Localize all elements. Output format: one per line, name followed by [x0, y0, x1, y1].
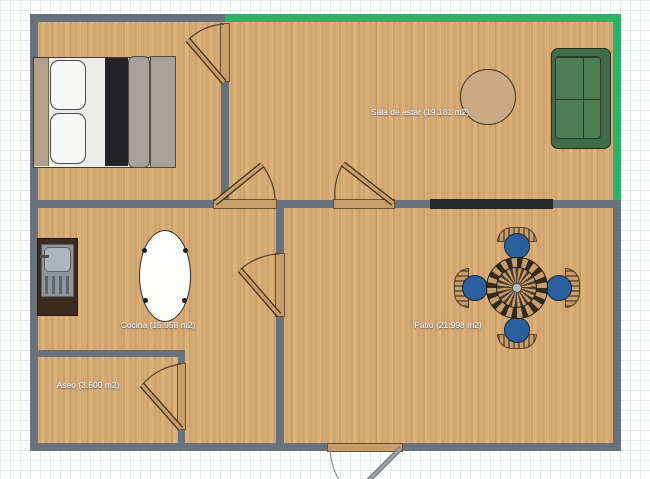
sink-appliance	[41, 244, 74, 297]
sink-faucet	[40, 255, 49, 258]
door-sill-aseo[interactable]	[177, 363, 186, 430]
door-sill-cocina-patio[interactable]	[275, 253, 285, 317]
patio-chair-icon[interactable]	[504, 233, 530, 259]
sofa-icon[interactable]	[551, 48, 611, 149]
bed-pillow	[50, 113, 86, 164]
room-label-cocina: Cocina (15.958 m2)	[88, 320, 228, 330]
oval-table-handle	[182, 298, 187, 303]
sofa-cushions	[555, 56, 601, 139]
room-label-sala: Sala de estar (19.181 m2)	[340, 107, 500, 117]
kitchen-sink-icon[interactable]	[37, 238, 78, 316]
patio-table-hub	[512, 283, 522, 293]
sink-vent-slats	[45, 276, 72, 294]
oval-table-handle	[143, 298, 148, 303]
door-exterior[interactable]	[330, 448, 401, 479]
patio-chair-icon[interactable]	[462, 275, 488, 301]
wall-top-gray[interactable]	[30, 14, 225, 22]
wall-cocina-patio-upper[interactable]	[276, 208, 284, 253]
double-bed-icon[interactable]	[33, 57, 176, 168]
door-sill-patio-sala[interactable]	[333, 199, 395, 209]
door-sill-bedroom[interactable]	[220, 23, 230, 82]
sink-basin	[44, 247, 71, 272]
wall-right-green[interactable]	[613, 14, 621, 203]
wall-bottom[interactable]	[30, 443, 621, 451]
door-sill-exterior[interactable]	[327, 443, 403, 452]
room-label-patio: Patio (21.998 m2)	[378, 320, 518, 330]
oval-table-icon[interactable]	[139, 230, 191, 322]
wall-middle-seg1[interactable]	[30, 200, 213, 208]
bed-blanket	[128, 56, 150, 168]
wall-aseo-right-upper[interactable]	[178, 355, 185, 363]
bed-pillow	[50, 60, 86, 110]
patio-chair-icon[interactable]	[546, 275, 572, 301]
oval-table-handle	[183, 248, 188, 253]
wall-right-gray[interactable]	[613, 203, 621, 451]
wall-middle-seg2[interactable]	[277, 200, 333, 208]
wall-top-green[interactable]	[225, 14, 621, 22]
wall-aseo-right-lower[interactable]	[178, 430, 185, 443]
wall-bedroom-sala[interactable]	[221, 82, 229, 200]
room-label-aseo: Aseo (3.600 m2)	[28, 380, 148, 390]
bed-headboard	[34, 58, 49, 166]
wall-middle-seg4[interactable]	[553, 200, 621, 208]
door-sill-cocina-sala[interactable]	[213, 199, 277, 209]
bed-blanket	[150, 56, 176, 168]
patio-table-icon[interactable]	[486, 257, 548, 319]
wall-aseo-top[interactable]	[38, 350, 185, 357]
bed-dark-blanket	[105, 58, 128, 166]
oval-table-handle	[142, 248, 147, 253]
window-sala-patio[interactable]	[430, 199, 553, 209]
wall-middle-seg3[interactable]	[395, 200, 430, 208]
wall-cocina-patio-lower[interactable]	[276, 317, 284, 443]
floorplan-canvas: Sala de estar (19.181 m2) Cocina (15.958…	[0, 0, 650, 479]
